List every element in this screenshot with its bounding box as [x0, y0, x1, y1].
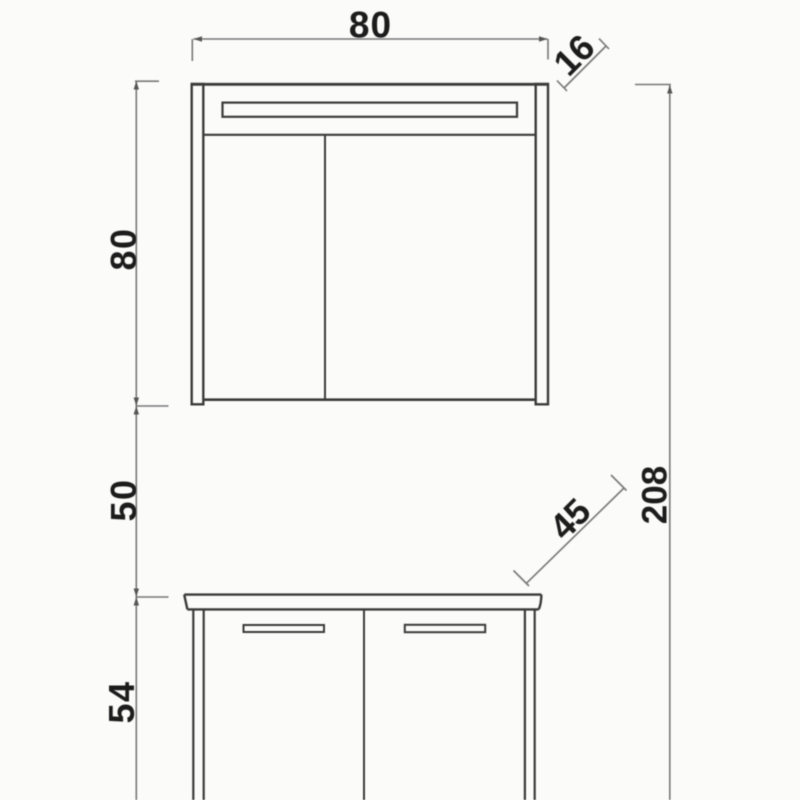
svg-text:54: 54 [101, 680, 142, 723]
svg-text:208: 208 [635, 466, 674, 524]
svg-text:80: 80 [349, 5, 392, 46]
svg-text:16: 16 [545, 26, 602, 83]
svg-text:50: 50 [103, 478, 144, 521]
svg-text:45: 45 [541, 490, 598, 547]
svg-text:80: 80 [103, 227, 144, 270]
